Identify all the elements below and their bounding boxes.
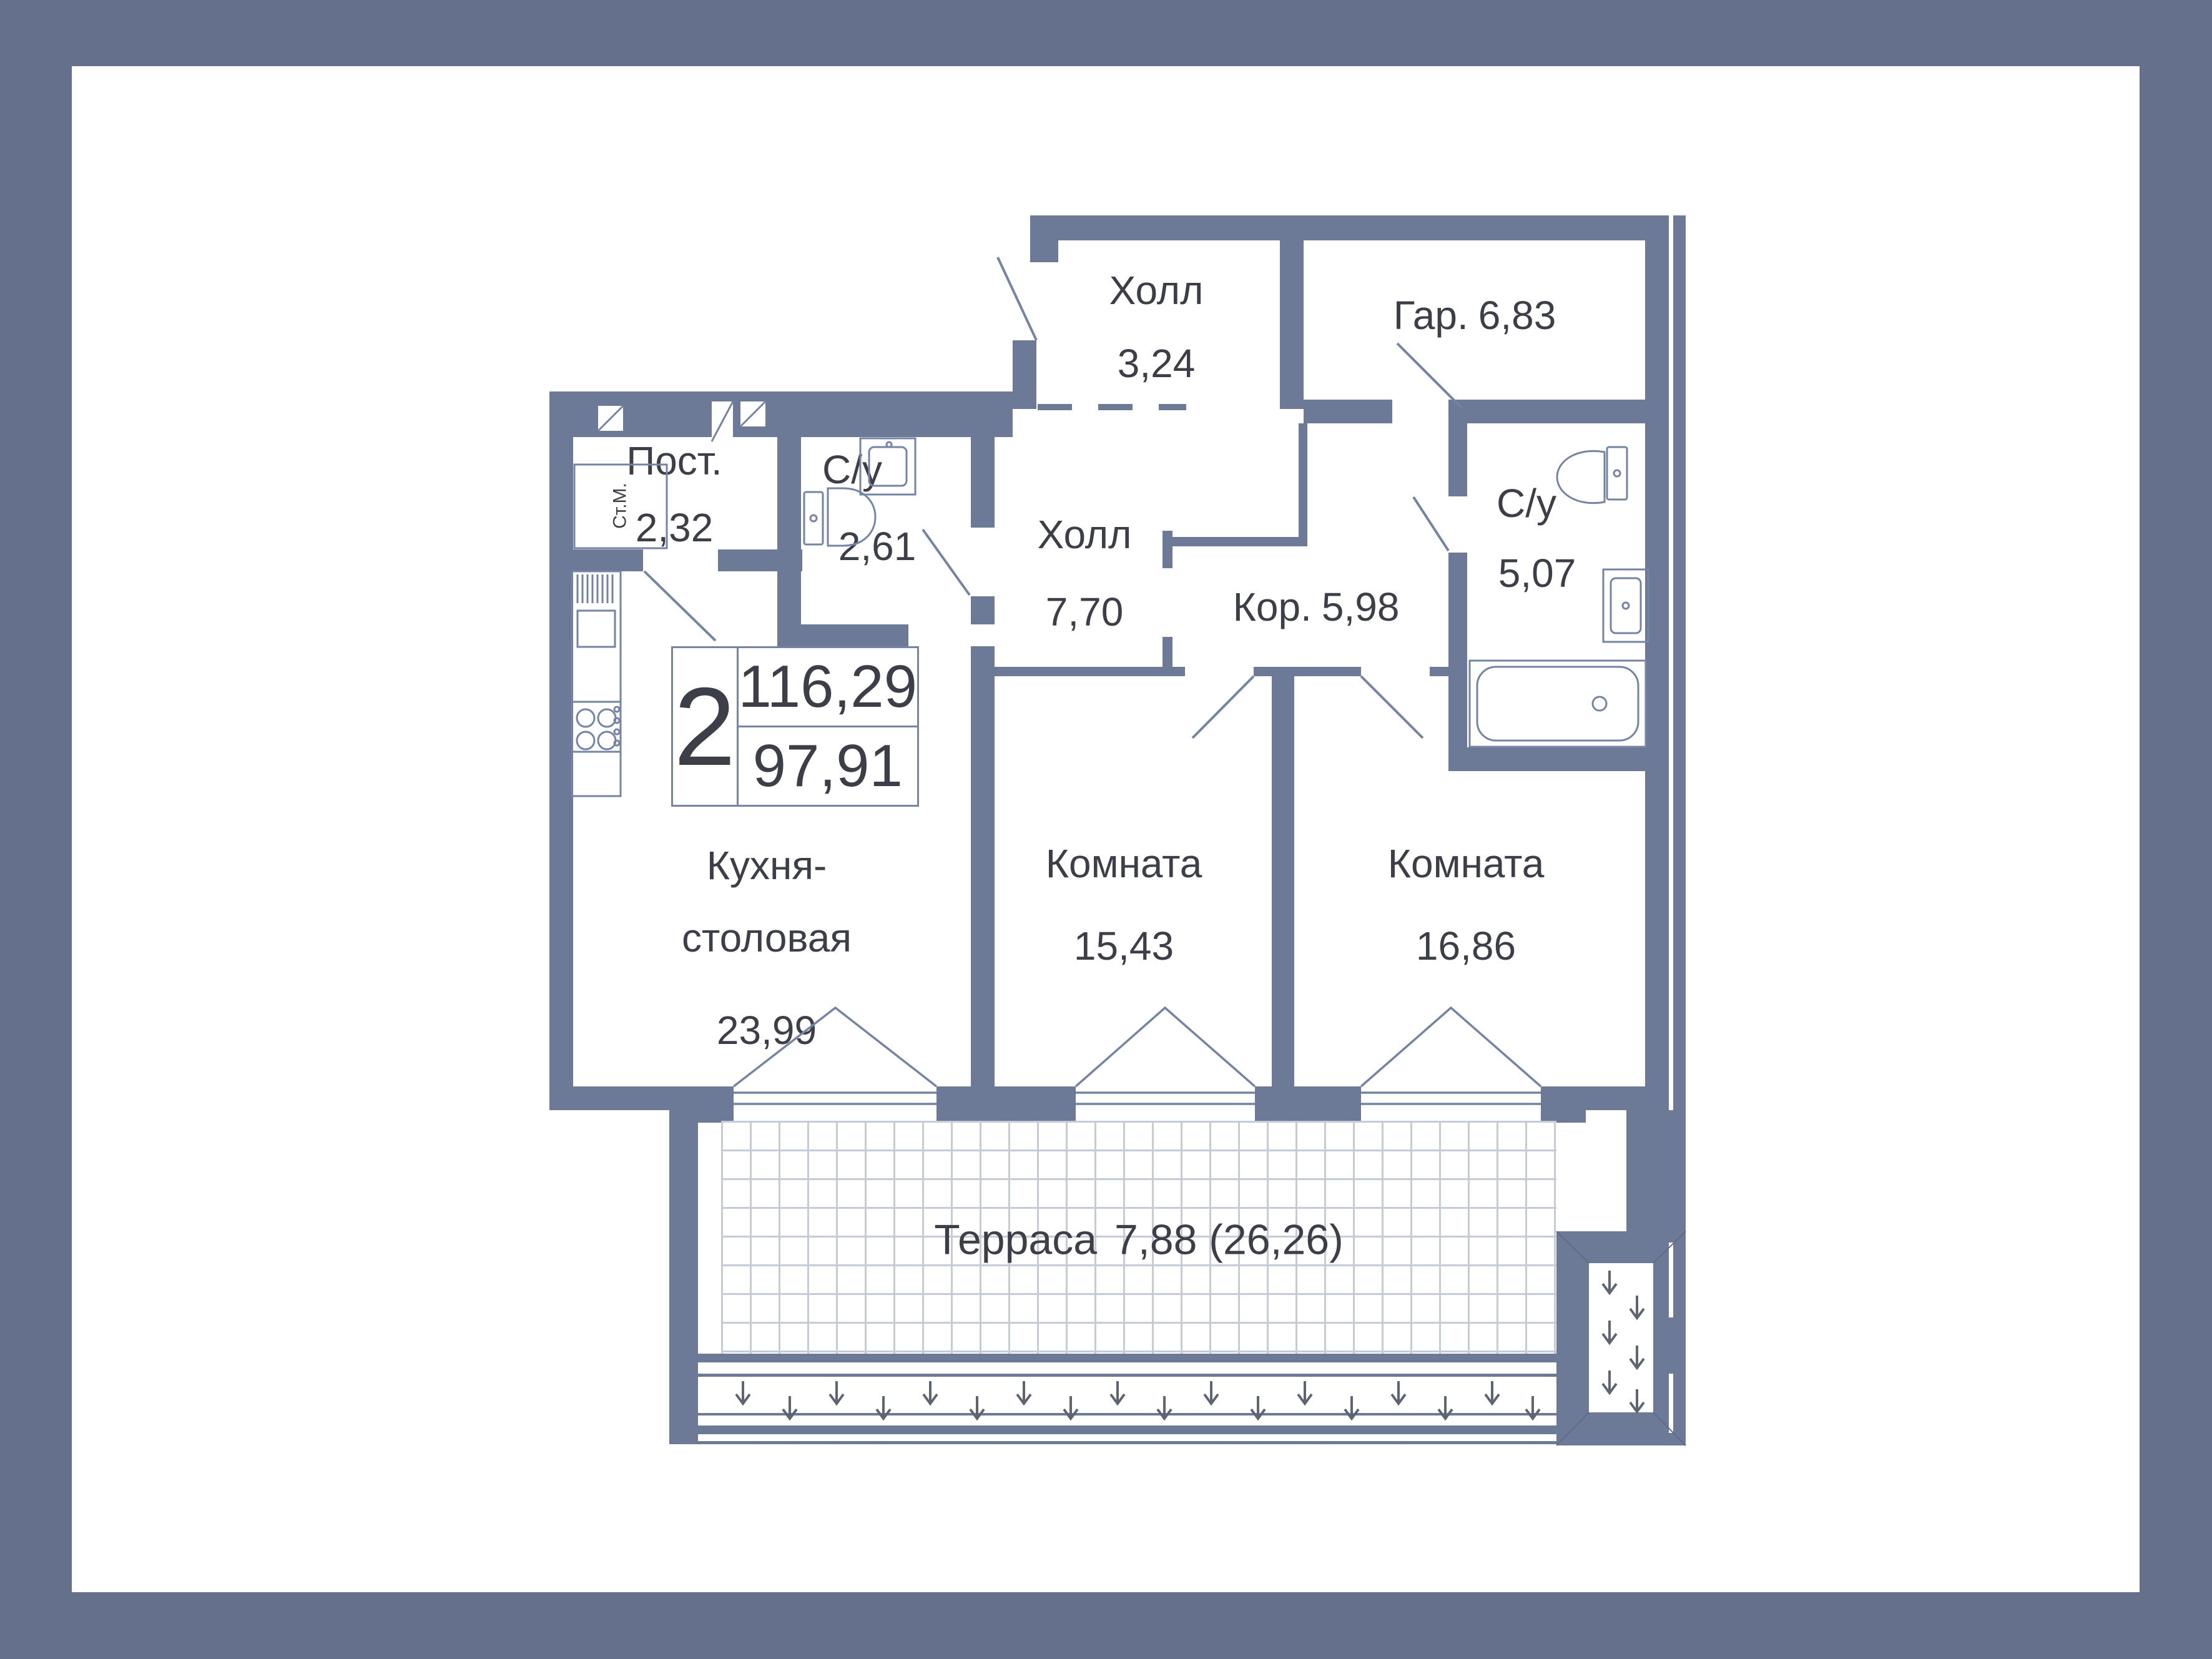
label-wc-big-name: С/у — [1497, 481, 1556, 525]
label-room-b-name: Комната — [1388, 842, 1545, 885]
railing-line-3 — [698, 1441, 1556, 1444]
label-wardrobe: Гар.6,83 — [1394, 293, 1556, 337]
railing-band — [698, 1425, 1556, 1434]
label-kitchen-area: 23,99 — [717, 1008, 817, 1052]
label-wardrobe-name: Гар. — [1394, 293, 1468, 337]
wall-terrace-left — [669, 1095, 698, 1444]
wall-segment — [1030, 240, 1058, 262]
wall-wc-bottom — [777, 624, 908, 646]
wall-corridor-bottom-2 — [1254, 667, 1361, 676]
label-washing-machine: Ст.М. — [610, 483, 631, 529]
vent-shaft-4 — [1036, 409, 1058, 430]
wall-thin-vertical — [1299, 423, 1307, 546]
wall-entry-stub — [1013, 340, 1036, 409]
wall-laundry-bottom-right — [718, 549, 802, 571]
wall-wc-right-lower — [971, 596, 995, 624]
wall-top — [1030, 215, 1669, 240]
label-kitchen-line2: столовая — [682, 916, 852, 960]
wall-stub-a — [1163, 531, 1172, 568]
total-area: 116,29 — [739, 648, 918, 727]
wall-kitchen-right — [971, 646, 995, 1086]
label-room-a-area: 15,43 — [1074, 924, 1174, 968]
label-kitchen-line1: Кухня- — [707, 844, 827, 887]
label-terrace-name: Терраса — [934, 1217, 1097, 1264]
label-terrace-area: 7,88 (26,26) — [1114, 1217, 1344, 1264]
wall-bath-left-upper — [1448, 400, 1467, 496]
wall-gap-strip-1 — [1669, 1243, 1673, 1317]
wall-corridor-bottom-1 — [995, 667, 1185, 676]
rooms-count: 2 — [673, 648, 739, 805]
label-corridor: Кор.5,98 — [1233, 585, 1400, 629]
label-wardrobe-area: 6,83 — [1478, 293, 1556, 337]
wall-left-exterior — [549, 437, 573, 1110]
label-room-b-area: 16,86 — [1416, 924, 1516, 968]
wall-stub-b — [1163, 637, 1172, 667]
label-hall-area: 7,70 — [1046, 590, 1124, 634]
floorplan-canvas: 2 116,29 97,91 Холл 3,24 Гар.6,83 Пост. … — [0, 0, 2212, 1659]
wall-bottom-2 — [936, 1086, 1076, 1110]
wall-bottom-1 — [549, 1086, 734, 1110]
label-hall-entry-name: Холл — [1109, 268, 1204, 312]
label-laundry-area: 2,32 — [636, 506, 714, 549]
label-hall-name: Холл — [1038, 513, 1132, 556]
unit-info-badge: 2 116,29 97,91 — [671, 646, 919, 807]
wall-gap-strip-2 — [1669, 1374, 1673, 1433]
label-laundry-name: Пост. — [626, 439, 722, 483]
label-wc-small-name: С/у — [822, 448, 882, 491]
wall-bath-left-lower — [1448, 553, 1467, 747]
label-terrace: Терраса7,88 (26,26) — [934, 1217, 1344, 1264]
wall-bedroom-divider — [1272, 676, 1294, 1086]
wall-terrace-right — [1626, 1110, 1686, 1231]
vent-shaft-2 — [712, 401, 733, 441]
label-room-a-name: Комната — [1046, 842, 1202, 885]
label-corridor-name: Кор. — [1233, 585, 1312, 629]
wall-corridor-top — [1172, 537, 1299, 546]
wall-laundry-wc — [777, 437, 801, 624]
label-hall-entry-area: 3,24 — [1118, 342, 1196, 385]
label-wc-small-area: 2,61 — [838, 524, 917, 568]
stair-well — [1589, 1263, 1653, 1412]
wall-wc-right-upper — [971, 437, 995, 528]
wall-wardrobe-bottom-right — [1461, 400, 1645, 423]
wall-hall-wardrobe — [1280, 240, 1304, 409]
wall-bottom-4 — [1541, 1086, 1645, 1110]
label-corridor-area: 5,98 — [1322, 585, 1400, 629]
vent-shaft-3 — [740, 401, 765, 426]
label-wc-big-area: 5,07 — [1498, 551, 1576, 595]
wall-laundry-bottom-left — [549, 549, 643, 571]
railing-line-2 — [698, 1413, 1556, 1415]
wall-bottom-3 — [1255, 1086, 1361, 1110]
plan-sheet — [72, 66, 2140, 1592]
terrace-edge-band — [698, 1354, 1556, 1362]
wall-bath-bottom — [1448, 747, 1645, 771]
railing-line-1 — [698, 1374, 1556, 1377]
vent-shaft-1 — [598, 406, 623, 431]
wall-wardrobe-bottom-left — [1304, 400, 1392, 423]
living-area: 97,91 — [739, 727, 918, 805]
